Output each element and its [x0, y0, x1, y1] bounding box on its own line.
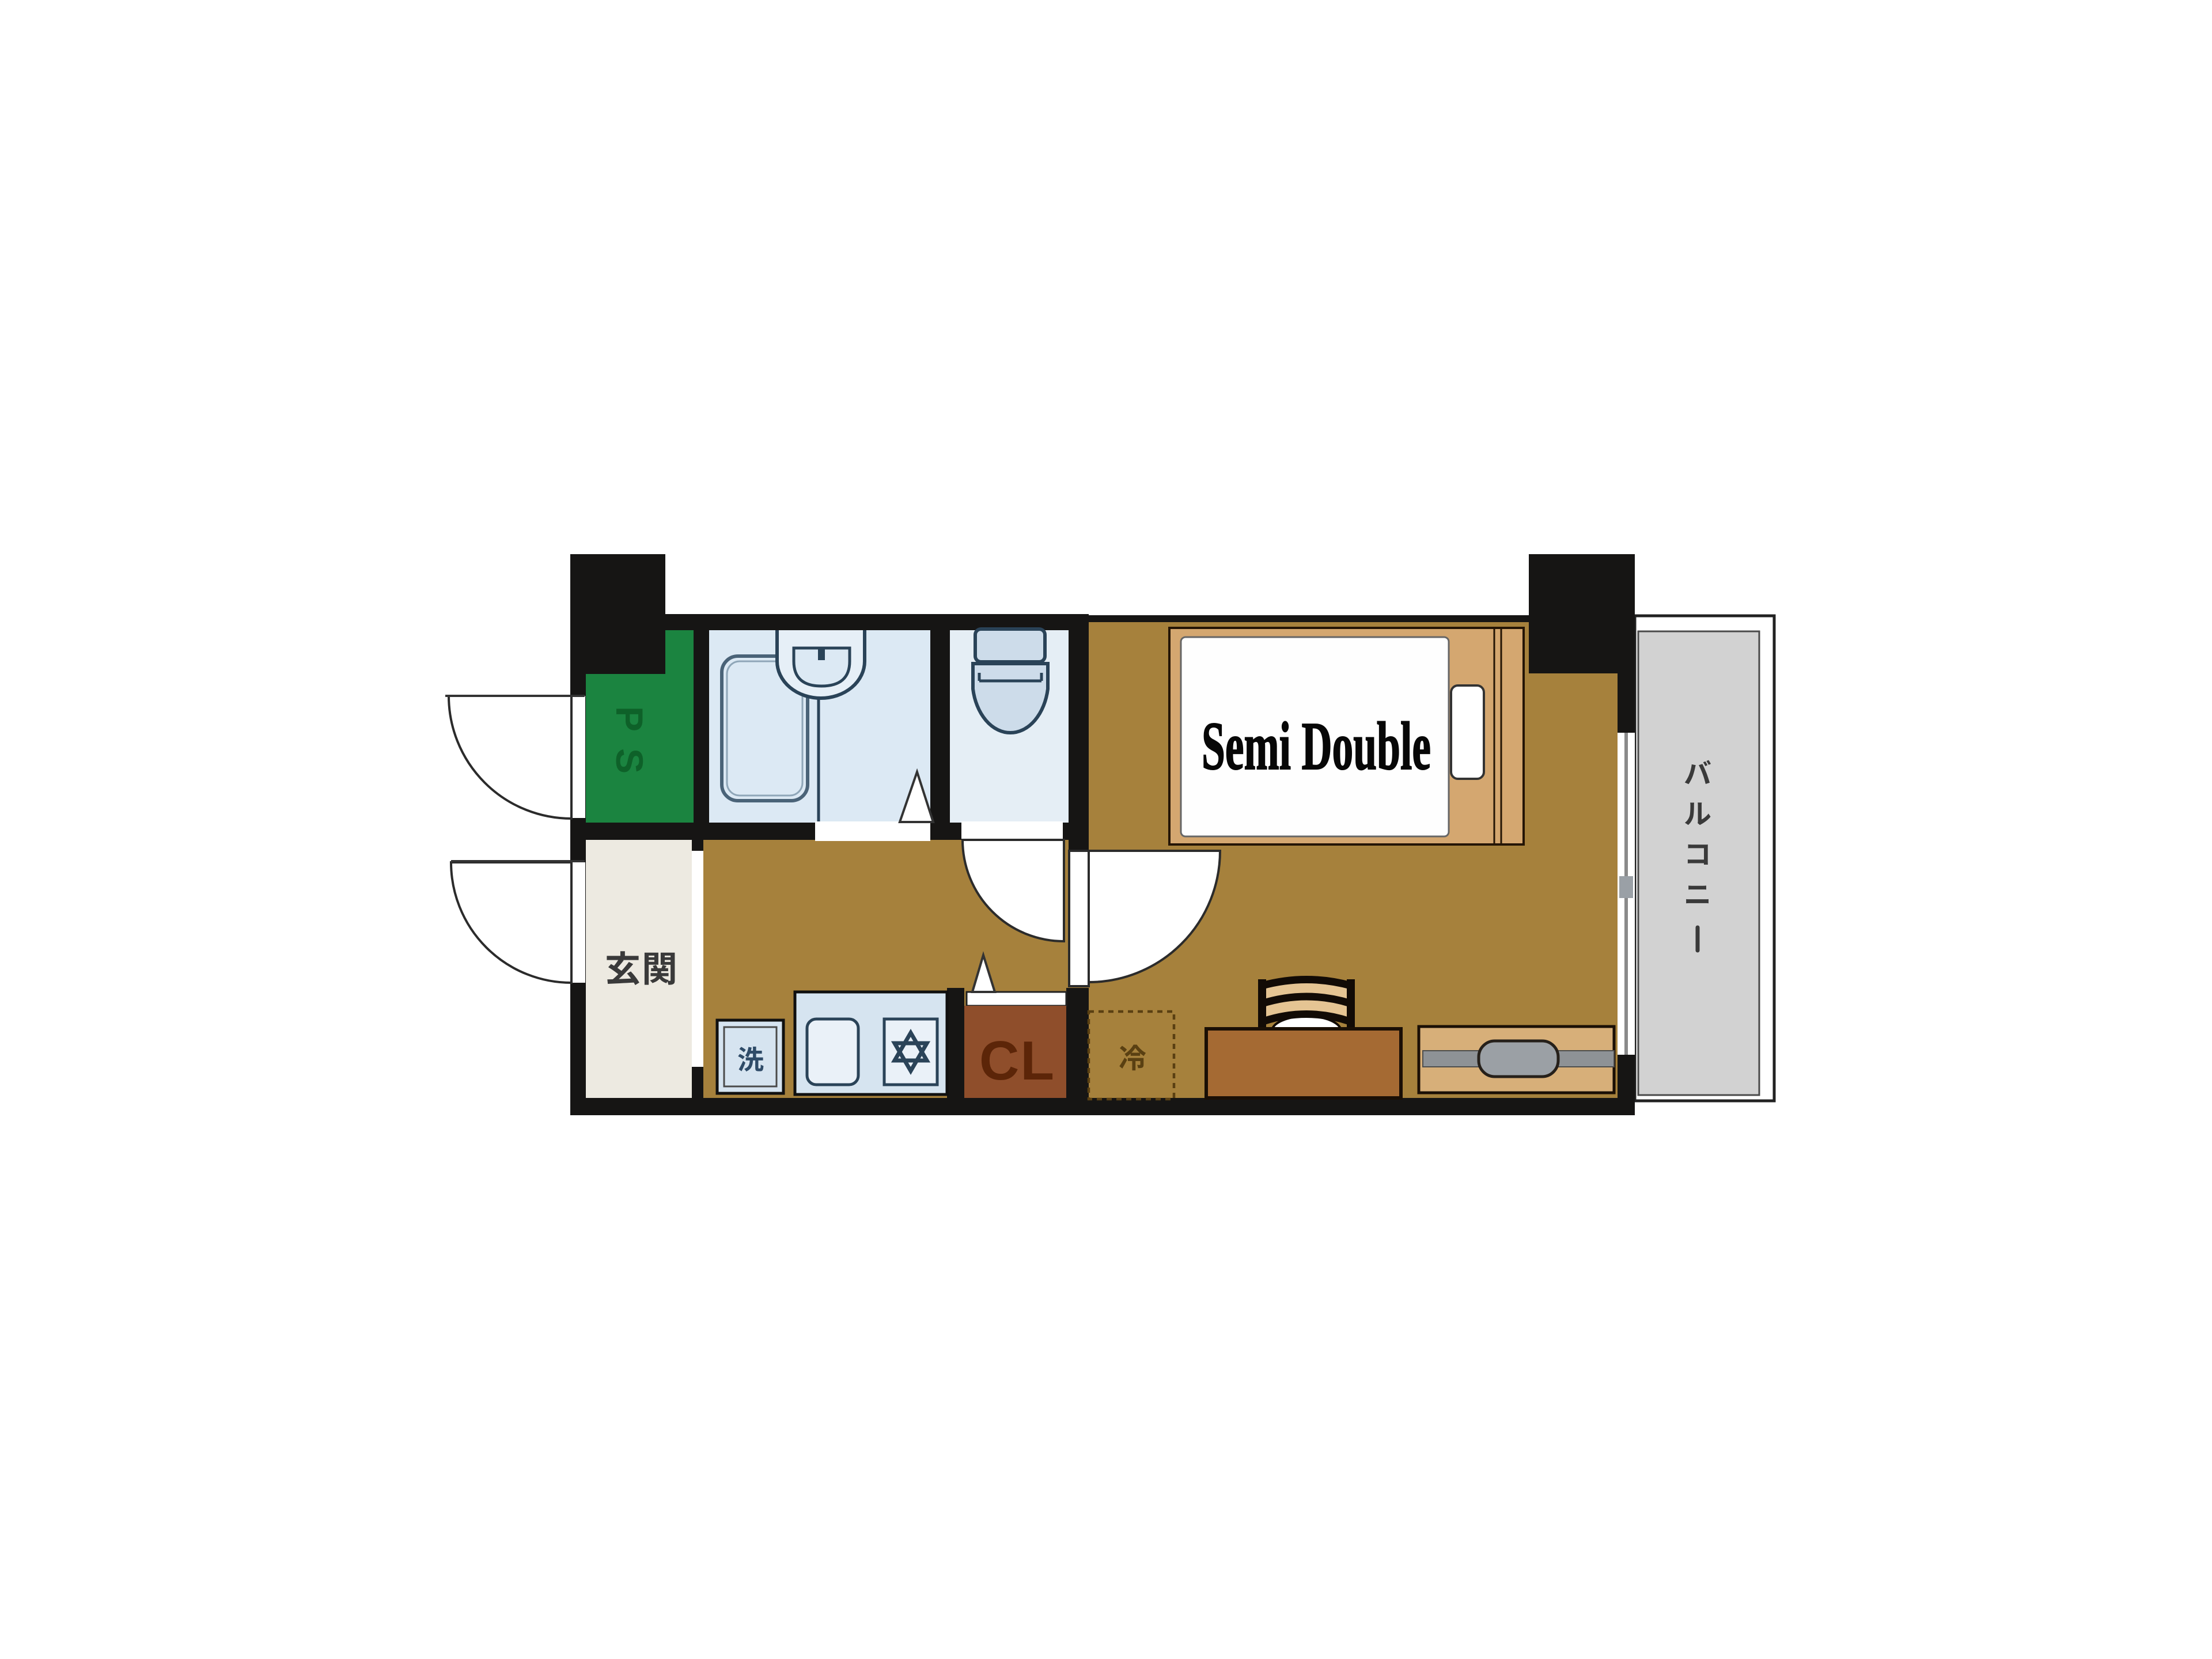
svg-text:Semi Double: Semi Double — [1202, 708, 1431, 784]
svg-text:S: S — [608, 748, 651, 774]
svg-text:CL: CL — [979, 1030, 1055, 1092]
svg-text:P: P — [608, 706, 651, 732]
